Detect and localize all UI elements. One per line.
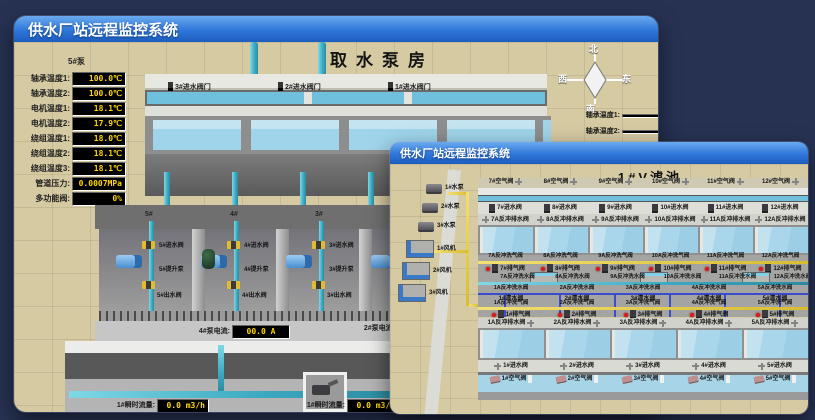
top-inlet-valve-row: 7#进水阀 8#进水阀 9#进水阀 10#进水阀 [478,202,808,214]
outlet-main-pipe [69,391,399,398]
valve-icon [711,264,717,273]
blower-icon [402,262,430,280]
valve-handle-icon [625,178,632,185]
backwash-air-valve-label: 11A反冲洗气阀 [707,254,744,260]
air-valve-label: 11#空气阀 [707,179,735,185]
valve-handle-icon [755,216,762,223]
sensor-value: 17.9℃ [72,117,126,131]
backwash-water-valve[interactable]: 10A反冲洗水阀 [655,275,710,281]
air-valve-label: 12#空气阀 [762,179,790,185]
drain-valve[interactable]: 11A反冲排水阀 [698,214,753,225]
backwash-water-valve-label: 10A反冲洗水阀 [664,275,702,281]
filter-scene: 1#V滤池 1#水泵 2#水泵 [390,164,808,414]
valve-handle-icon [645,216,652,223]
sensor-row: 电机温度1: 18.1℃ [16,102,126,116]
flow-readout: 1#瞬时流量: 0.0 m3/h [285,399,399,412]
sensor-label: 电机温度1: [16,105,70,113]
side-readout: 轴承温度1: [560,112,658,119]
valve-handle-icon [494,363,501,370]
backwash-air-valve[interactable]: 12A反冲洗气阀 [753,254,808,260]
exhaust-valve[interactable]: 7#排气阀 [478,264,533,273]
air-valve-label: 2#空气阀 [568,376,593,382]
blower-label: 1#风机 [437,246,456,252]
intake-valve-row: 3#进水阀门 2#进水阀门 1#进水阀门 [145,82,547,98]
drain-valve-label: 5A反冲排水阀 [752,320,790,326]
valve-handle-icon [758,363,765,370]
drain-valve[interactable]: 2A反冲排水阀 [544,318,610,328]
inlet-valve-icon[interactable] [312,241,325,249]
exhaust-valve-label: 5#排气阀 [770,312,795,318]
backwash-air-valve-label: 10A反冲洗气阀 [652,254,690,260]
backwash-water-valve-label: 2A反冲洗水阀 [560,286,595,292]
backwash-water-valve-label: 1A反冲洗水阀 [494,286,529,292]
compass-west: 西 [558,72,567,85]
pipe-stub-icon [528,375,532,383]
inlet-valve-label: 8#进水阀 [552,205,577,211]
air-valve-label: 3#空气阀 [634,376,659,382]
pump-current-label: 2#泵电流: [335,325,395,332]
bottom-filter-cells [478,328,808,360]
drain-valve-label: 4A反冲排水阀 [686,320,724,326]
sensor-value: 18.1℃ [72,147,126,161]
water-cell [153,120,241,150]
top-slab [478,188,808,195]
air-valve[interactable]: 12#空气阀 [753,178,808,185]
sensor-row: 轴承温度1: 100.0℃ [16,72,126,86]
window2-title: 供水厂站远程监控系统 [400,145,510,161]
drain-valve[interactable]: 3A反冲排水阀 [610,318,676,328]
valve-icon [599,204,605,213]
alarm-dot-icon [759,267,763,271]
valve-icon [489,204,495,213]
inlet-valve[interactable]: 2#进水阀 [544,360,610,372]
pipe-stub-icon [726,375,730,383]
bottom-drain-valve-row: 1A反冲排水阀 2A反冲排水阀 3A反冲排水阀 4A反冲排水阀 [478,318,808,328]
backwash-air-valve[interactable]: 1A反冲洗气阀 [478,301,544,307]
sensor-panel: 轴承温度1: 100.0℃ 轴承温度2: 100.0℃ 电机温度1: 18.1℃ [16,72,146,212]
drain-valve-label: 12A反冲排水阀 [764,217,805,223]
backwash-water-valve[interactable]: 3A反冲洗水阀 [610,286,676,292]
drain-valve[interactable]: 12A反冲排水阀 [753,214,808,225]
sensor-row: 管道压力: 0.0007MPa [16,177,126,191]
sensor-row: 电机温度2: 17.9℃ [16,117,126,131]
valve-icon [621,375,632,383]
exhaust-valve-label: 7#排气阀 [500,266,525,272]
sensor-value: 18.1℃ [72,162,126,176]
valve-handle-icon [725,320,732,327]
inlet-valve-label: 5#进水阀 [767,363,792,369]
backwash-water-valve-label: 4A反冲洗水阀 [692,286,727,292]
backwash-water-valve[interactable]: 11A反冲洗水阀 [710,275,765,281]
backwash-air-valve[interactable]: 8A反冲洗气阀 [533,254,588,260]
drain-valve-label: 8A反冲排水阀 [546,217,584,223]
alarm-dot-icon [690,313,694,317]
exhaust-valve-label: 11#排气阀 [719,266,747,272]
air-valve[interactable]: 11#空气阀 [698,178,753,185]
lift-pump-icon[interactable] [286,255,312,268]
alarm-dot-icon [705,267,709,271]
pump-station-pipe-icon [328,379,339,387]
air-valve-label: 10#空气阀 [652,179,680,185]
outlet-valve-icon[interactable] [142,281,155,289]
valve-icon [388,82,393,91]
inlet-valve[interactable]: 3#进水阀 [610,360,676,372]
sensor-label: 绕组温度2: [16,150,70,158]
sensor-value: 0.0007MPa [72,177,126,191]
backwash-water-valve[interactable]: 9A反冲洗水阀 [600,275,655,281]
lift-pump-label: 4#提升泵 [244,267,269,273]
inlet-valve-label: 3#进水阀 [635,363,660,369]
air-valve[interactable]: 7#空气阀 [478,178,533,185]
side-readout-label: 轴承温度1: [560,112,620,119]
bottom-air-valve-row: 1#空气阀 2#空气阀 3#空气阀 [478,375,808,389]
air-valve-label: 1#空气阀 [502,376,527,382]
drain-valve-label: 10A反冲排水阀 [654,217,695,223]
sensor-label: 轴承温度2: [16,90,70,98]
sensor-label: 电机温度2: [16,120,70,128]
outlet-valve-icon[interactable] [312,281,325,289]
sensor-row: 多功能阀: 0% [16,192,126,206]
alarm-dot-icon [756,313,760,317]
valve-handle-icon [537,216,544,223]
side-readout-label: 轴承温度2: [560,128,620,135]
backwash-air-valve-label: 2A反冲洗气阀 [560,301,595,307]
pipe-stub-icon [660,375,664,383]
backwash-water-valve-label: 9A反冲洗水阀 [610,275,645,281]
air-valve-label: 7#空气阀 [489,179,514,185]
alarm-dot-icon [492,313,496,317]
drain-valve-label: 1A反冲排水阀 [488,320,526,326]
window1-titlebar[interactable]: 供水厂站远程监控系统 [14,16,658,42]
filter-cell [755,227,808,253]
exhaust-valve-label: 8#排气阀 [555,266,580,272]
filter-cell [744,330,808,358]
inlet-valve-label: 11#进水阀 [716,205,744,211]
valve-handle-icon [626,363,633,370]
inlet-valve[interactable]: 4#进水阀 [676,360,742,372]
backwash-air-valve-row-top: 7A反冲洗气阀8A反冲洗气阀9A反冲洗气阀10A反冲洗气阀11A反冲洗气阀12A… [478,254,808,261]
backwash-air-valve-label: 5A反冲洗气阀 [758,301,793,307]
flow-readout-label: 1#瞬时流量: [285,402,345,409]
lift-pump-icon[interactable] [116,255,142,268]
inlet-valve-label: 12#进水阀 [770,205,798,211]
drain-valve[interactable]: 8A反冲排水阀 [533,214,588,225]
sensor-row: 绕组温度2: 18.1℃ [16,147,126,161]
intake-valve[interactable]: 3#进水阀门 [168,82,211,91]
drain-valve-label: 3A反冲排水阀 [620,320,658,326]
inlet-valve-icon[interactable] [142,241,155,249]
valve-handle-icon [570,178,577,185]
backwash-air-valve-label: 7A反冲洗气阀 [488,254,523,260]
sensor-value: 100.0℃ [72,87,126,101]
backwash-air-valve-label: 1A反冲洗气阀 [494,301,529,307]
inlet-valve-label: 5#进水阀 [159,243,184,249]
valve-icon [708,204,714,213]
air-valve[interactable]: 4#空气阀 [676,375,742,383]
bottom-wall [478,392,808,400]
blower[interactable]: 2#风机 [402,262,452,280]
sensor-value: 18.0℃ [72,132,126,146]
exhaust-valve-label: 3#排气阀 [638,312,663,318]
outlet-valve-label: 5#出水阀 [157,293,182,299]
sensor-value: 18.1℃ [72,102,126,116]
backwash-water-valve-row-bottom: 1A反冲洗水阀2A反冲洗水阀3A反冲洗水阀4A反冲洗水阀5A反冲洗水阀 [478,286,808,293]
sensor-row: 轴承温度2: 100.0℃ [16,87,126,101]
bay-pipe [149,221,154,311]
air-valve-label: 9#空气阀 [599,179,624,185]
bay-number: 5# [145,211,153,218]
valve-handle-icon [701,216,708,223]
inlet-valve[interactable]: 12#进水阀 [753,202,808,214]
top-filter-cells [478,225,808,255]
air-valve-label: 8#空气阀 [544,179,569,185]
exhaust-valve-label: 12#排气阀 [773,266,801,272]
inlet-valve[interactable]: 1#进水阀 [478,360,544,372]
intake-valve[interactable]: 2#进水阀门 [278,82,321,91]
intake-mid-slab [145,106,547,116]
backwash-air-valve[interactable]: 2A反冲洗气阀 [544,301,610,307]
side-readout-value [622,114,658,118]
blower-column: 1#风机 2#风机 3#风机 [390,164,480,324]
pipe-stub [250,42,258,75]
backwash-water-valve-label: 11A反冲洗水阀 [719,275,756,281]
inlet-valve-icon[interactable] [227,241,240,249]
drain-valve-label: 11A反冲排水阀 [710,217,751,223]
valve-handle-icon [682,178,689,185]
valve-icon [544,204,550,213]
sensor-row: 绕组温度3: 18.1℃ [16,162,126,176]
pump-current-value: 00.0 A [232,325,290,339]
bay-pipe [234,221,239,311]
sensor-row: 绕组温度1: 18.0℃ [16,132,126,146]
bay-number: 3# [315,211,323,218]
air-valve-label: 4#空气阀 [700,376,725,382]
bay-pipe [319,221,324,311]
backwash-water-valve-label: 8A反冲洗水阀 [555,275,590,281]
valve-handle-icon [791,320,798,327]
exhaust-valve-row-bottom: 1#排气阀 2#排气阀 3#排气阀 [478,310,808,318]
desktop: 供水厂站远程监控系统 取水泵房 3#进水阀门 [0,0,815,420]
backwash-water-valve[interactable]: 4A反冲洗水阀 [676,286,742,292]
intake-valve-label: 2#进水阀门 [285,84,321,91]
backwash-air-valve[interactable]: 5A反冲洗气阀 [742,301,808,307]
air-valve[interactable]: 8#空气阀 [533,178,588,185]
valve-icon [753,375,764,383]
backwash-water-valve-row-top: 7A反冲洗水阀8A反冲洗水阀9A反冲洗水阀10A反冲洗水阀11A反冲洗水阀12A… [490,275,808,282]
water-cell [251,120,339,150]
inlet-valve[interactable]: 11#进水阀 [698,202,753,214]
backwash-air-valve[interactable]: 9A反冲洗气阀 [588,254,643,260]
alarm-dot-icon [558,313,562,317]
backwash-air-valve[interactable]: 4A反冲洗气阀 [676,301,742,307]
alarm-dot-icon [596,267,600,271]
valve-handle-icon [692,363,699,370]
inlet-valve-label: 2#进水阀 [569,363,594,369]
window2-titlebar[interactable]: 供水厂站远程监控系统 [390,142,808,164]
backwash-air-valve[interactable]: 7A反冲洗气阀 [478,254,533,260]
filter-cell [678,330,742,358]
backwash-water-valve-label: 3A反冲洗水阀 [626,286,661,292]
valve-handle-icon [482,216,489,223]
air-valve[interactable]: 1#空气阀 [478,375,544,383]
backwash-water-valve[interactable]: 1A反冲洗水阀 [478,286,544,292]
drain-valve[interactable]: 4A反冲排水阀 [676,318,742,328]
drain-valve[interactable]: 1A反冲排水阀 [478,318,544,328]
backwash-water-valve[interactable]: 7A反冲洗水阀 [490,275,545,281]
clean-water-main [478,293,808,295]
exhaust-valve-label: 10#排气阀 [663,266,691,272]
inlet-valve-label: 1#进水阀 [503,363,528,369]
inlet-valve[interactable]: 10#进水阀 [643,202,698,214]
backwash-air-valve-label: 3A反冲洗气阀 [626,301,661,307]
filter-cell [480,330,544,358]
backwash-water-valve[interactable]: 2A反冲洗水阀 [544,286,610,292]
air-valve[interactable]: 10#空气阀 [643,178,698,185]
backwash-air-valve-label: 12A反冲洗气阀 [762,254,800,260]
bay-number: 4# [230,211,238,218]
pump-current-label: 4#泵电流: [170,328,230,335]
backwash-air-valve-label: 4A反冲洗气阀 [692,301,727,307]
lift-pump-label: 5#提升泵 [159,267,184,273]
sensor-label: 轴承温度1: [16,75,70,83]
compass-east: 东 [622,72,631,85]
valve-icon [168,82,173,91]
valve-icon [602,264,608,273]
drain-valve[interactable]: 10A反冲排水阀 [643,214,698,225]
intake-valve[interactable]: 1#进水阀门 [388,82,431,91]
valve-icon [492,264,498,273]
blower-label: 2#风机 [433,268,452,274]
drain-valve[interactable]: 5A反冲排水阀 [742,318,808,328]
backwash-water-valve[interactable]: 8A反冲洗水阀 [545,275,600,281]
bottom-inlet-valve-row: 1#进水阀 2#进水阀 3#进水阀 4#进水阀 [478,360,808,372]
blower[interactable]: 1#风机 [406,240,456,258]
pump-current-readout: 4#泵电流: 00.0 A [170,325,290,339]
outlet-valve-label: 4#出水阀 [242,293,267,299]
inlet-valve[interactable]: 8#进水阀 [533,202,588,214]
backwash-air-valve[interactable]: 11A反冲洗气阀 [698,254,753,260]
inlet-valve[interactable]: 5#进水阀 [742,360,808,372]
inlet-valve-label: 4#进水阀 [244,243,269,249]
backwash-air-valve[interactable]: 10A反冲洗气阀 [643,254,698,260]
side-readout: 轴承温度2: [560,128,658,135]
exhaust-valve-label: 2#排气阀 [572,312,597,318]
drain-valve-label: 7A反冲排水阀 [491,217,529,223]
drain-valve-label: 9A反冲排水阀 [601,217,639,223]
backwash-air-valve-label: 9A反冲洗气阀 [598,254,633,260]
inlet-valve[interactable]: 9#进水阀 [588,202,643,214]
inlet-valve-label: 10#进水阀 [660,205,688,211]
sensor-label: 管道压力: [16,180,70,188]
alarm-dot-icon [541,267,545,271]
outlet-valve-icon[interactable] [227,281,240,289]
exhaust-valve-label: 9#排气阀 [610,266,635,272]
alarm-dot-icon [624,313,628,317]
sensor-label: 绕组温度3: [16,165,70,173]
inlet-channel [478,195,808,202]
valve-handle-icon [792,178,799,185]
filter-cell [612,330,676,358]
alarm-dot-icon [486,267,490,271]
pipe-stub-icon [792,375,796,383]
top-air-valve-row: 7#空气阀 8#空气阀 9#空气阀 10#空气阀 [478,178,808,188]
filter-cell [700,227,753,253]
valve-handle-icon [527,320,534,327]
pipe-stub-icon [594,375,598,383]
backwash-water-valve-label: 5A反冲洗水阀 [758,286,793,292]
intake-valve-label: 3#进水阀门 [175,84,211,91]
drain-valve[interactable]: 7A反冲排水阀 [478,214,533,225]
filter-cell [645,227,698,253]
inlet-valve-label: 4#进水阀 [701,363,726,369]
air-valve-label: 5#空气阀 [766,376,791,382]
sensor-value: 100.0℃ [72,72,126,86]
air-valve[interactable]: 3#空气阀 [610,375,676,383]
valve-icon [687,375,698,383]
pump-bay: 5# 5#进水阀 5#提升泵 5#出水阀 [109,205,193,321]
sensor-label: 绕组温度1: [16,135,70,143]
valve-handle-icon [737,178,744,185]
exhaust-valve-label: 4#排气阀 [704,312,729,318]
sensor-panel-header: 5#泵 [68,58,85,66]
riser-pipe [218,345,224,393]
valve-icon [652,204,658,213]
lift-pump-label: 3#提升泵 [329,267,354,273]
top-drain-valve-row: 7A反冲排水阀 8A反冲排水阀 9A反冲排水阀 10A反冲排水阀 [478,214,808,225]
drain-valve-label: 2A反冲排水阀 [554,320,592,326]
filter-cell [546,330,610,358]
side-readout-panel: 轴承温度1: 轴承温度2: [560,112,658,146]
exhaust-valve-row-top: 7#排气阀 8#排气阀 9#排气阀 [478,264,808,272]
filter-cell [590,227,643,253]
backwash-water-valve-label: 7A反冲洗水阀 [500,275,535,281]
blower-icon [406,240,434,258]
flow-readout: 1#瞬时流量: 0.0 m3/h [95,399,209,412]
valve-icon [278,82,283,91]
valve-handle-icon [560,363,567,370]
backwash-air-valve[interactable]: 3A反冲洗气阀 [610,301,676,307]
air-valve[interactable]: 9#空气阀 [588,178,643,185]
drain-valve[interactable]: 9A反冲排水阀 [588,214,643,225]
backwash-air-valve-row-bottom: 1A反冲洗气阀2A反冲洗气阀3A反冲洗气阀4A反冲洗气阀5A反冲洗气阀 [478,301,808,307]
backwash-air-valve-label: 8A反冲洗气阀 [543,254,578,260]
backwash-water-valve[interactable]: 5A反冲洗水阀 [742,286,808,292]
flow-readout-value: 0.0 m3/h [157,399,209,412]
backwash-water-valve-label: 12A反冲洗水阀 [774,275,808,281]
air-valve[interactable]: 5#空气阀 [742,375,808,383]
intake-valve-label: 1#进水阀门 [395,84,431,91]
compass-north: 北 [589,42,598,55]
air-valve[interactable]: 2#空气阀 [544,375,610,383]
inlet-valve-label: 7#进水阀 [497,205,522,211]
blower-icon [398,284,426,302]
green-tank [202,249,215,269]
valve-handle-icon [659,320,666,327]
backwash-water-valve[interactable]: 12A反冲洗水阀 [765,275,808,281]
valve-handle-icon [592,216,599,223]
exhaust-valve[interactable]: 9#排气阀 [588,264,643,273]
valve-icon [762,204,768,213]
window1-title: 供水厂站远程监控系统 [28,19,178,40]
blower[interactable]: 3#风机 [398,284,448,302]
filter-cell [480,227,533,253]
inlet-valve[interactable]: 7#进水阀 [478,202,533,214]
pump-station-pump-icon [312,385,330,395]
sensor-label: 多功能阀: [16,195,70,203]
exhaust-valve-label: 1#排气阀 [506,312,531,318]
valve-handle-icon [593,320,600,327]
inlet-valve-label: 3#进水阀 [329,243,354,249]
